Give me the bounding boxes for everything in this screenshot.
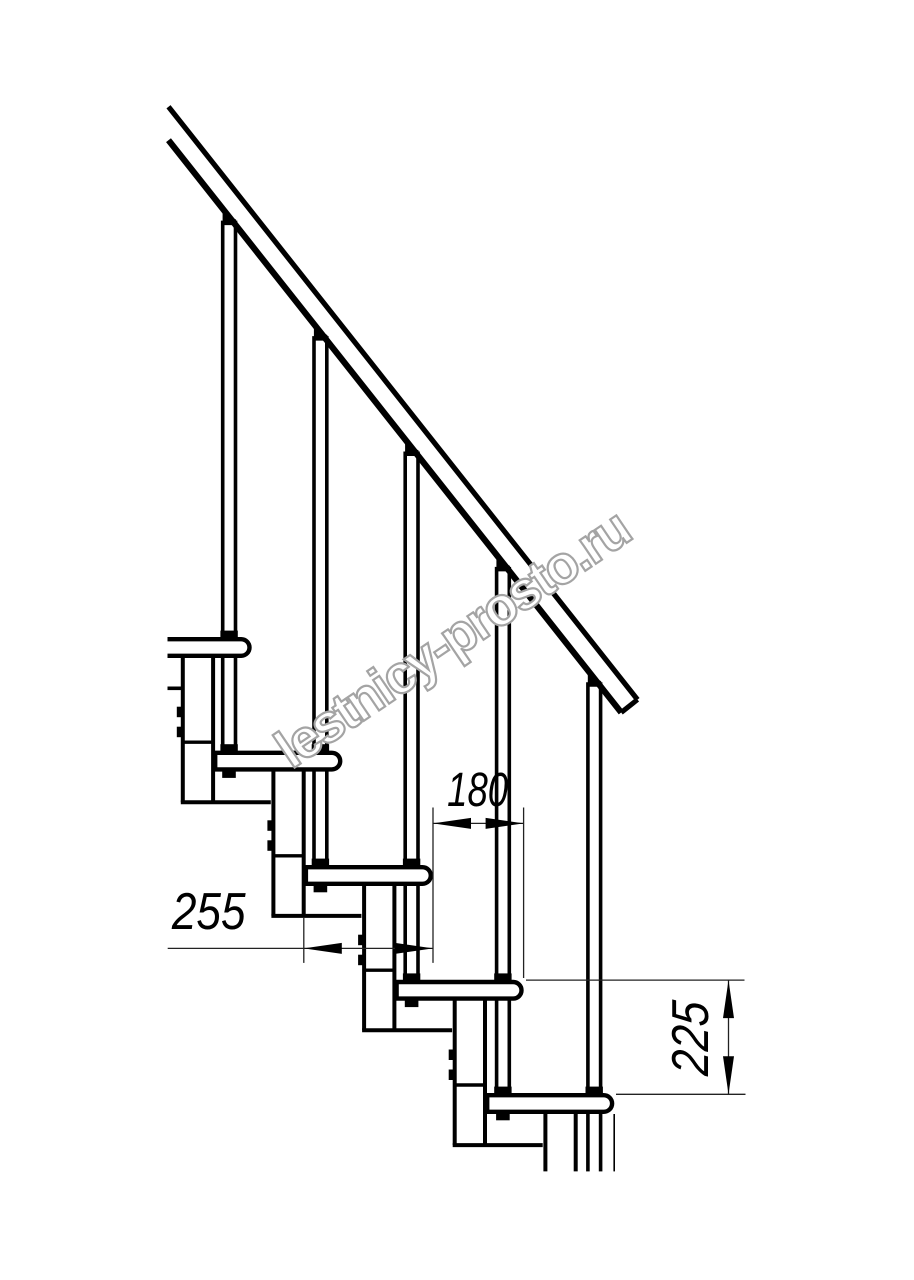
svg-text:225: 225	[662, 997, 720, 1078]
svg-text:180: 180	[447, 763, 508, 817]
svg-text:255: 255	[171, 883, 246, 941]
svg-text:lestnicy-prosto.ru: lestnicy-prosto.ru	[265, 499, 641, 780]
